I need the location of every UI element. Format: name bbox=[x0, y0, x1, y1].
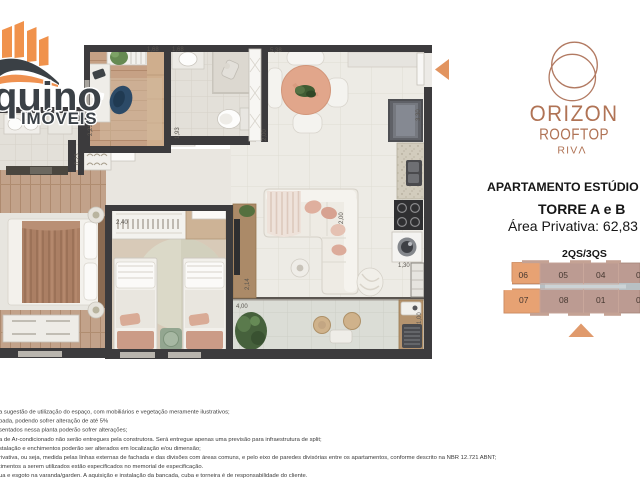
svg-text:5,38: 5,38 bbox=[270, 48, 282, 54]
svg-text:bada, podendo sofrer alteração: bada, podendo sofrer alteração de até 5% bbox=[0, 419, 108, 425]
svg-text:1,93: 1,93 bbox=[175, 127, 181, 139]
svg-text:Área Privativa: 62,83 m: Área Privativa: 62,83 m bbox=[508, 218, 640, 234]
svg-text:1,68: 1,68 bbox=[147, 47, 159, 53]
svg-text:2QS/3QS: 2QS/3QS bbox=[562, 248, 607, 260]
svg-text:rivativa, ou seja, medida pela: rivativa, ou seja, medida pelas linhas e… bbox=[0, 455, 497, 461]
svg-text:2,40: 2,40 bbox=[116, 220, 128, 226]
svg-text:2,00: 2,00 bbox=[262, 129, 268, 141]
svg-text:0: 0 bbox=[636, 295, 640, 305]
svg-text:05: 05 bbox=[559, 270, 569, 280]
svg-text:a sugestão de utilização do es: a sugestão de utilização do espaço, com … bbox=[0, 410, 230, 416]
svg-text:ua e esgoto na varanda/garden.: ua e esgoto na varanda/garden. A aquisiç… bbox=[0, 473, 308, 479]
svg-text:0,23: 0,23 bbox=[75, 153, 81, 165]
svg-text:sentados nessa planta poderão: sentados nessa planta poderão sofrer alt… bbox=[0, 428, 128, 434]
svg-text:4,00: 4,00 bbox=[236, 304, 248, 310]
svg-text:IMÓVEIS: IMÓVEIS bbox=[21, 109, 97, 128]
svg-text:2,14: 2,14 bbox=[245, 278, 251, 290]
svg-text:APARTAMENTO ESTÚDIO - FI: APARTAMENTO ESTÚDIO - FI bbox=[487, 179, 640, 194]
svg-text:a de Ar-condicionado não serão: a de Ar-condicionado não serão entregues… bbox=[0, 437, 322, 443]
svg-text:ROOFTOP: ROOFTOP bbox=[539, 127, 609, 144]
svg-text:1,00: 1,00 bbox=[417, 312, 423, 324]
svg-text:2,00: 2,00 bbox=[339, 212, 345, 224]
svg-text:01: 01 bbox=[596, 295, 606, 305]
svg-text:timentos a serem utilizados es: timentos a serem utilizados estão especi… bbox=[0, 464, 204, 470]
svg-text:ORIZON: ORIZON bbox=[530, 101, 619, 126]
svg-text:06: 06 bbox=[519, 270, 529, 280]
svg-text:1,30: 1,30 bbox=[398, 263, 410, 269]
svg-text:0: 0 bbox=[636, 270, 640, 280]
svg-text:07: 07 bbox=[519, 295, 529, 305]
svg-text:TORRE A e B: TORRE A e B bbox=[538, 201, 625, 217]
svg-text:3,30: 3,30 bbox=[416, 109, 422, 121]
svg-text:stalação e enchimentos poderão: stalação e enchimentos poderão ser alter… bbox=[0, 446, 201, 452]
svg-text:1,68: 1,68 bbox=[172, 47, 184, 53]
svg-text:08: 08 bbox=[559, 295, 569, 305]
svg-text:RIVΛ: RIVΛ bbox=[557, 145, 586, 157]
svg-text:04: 04 bbox=[596, 270, 606, 280]
